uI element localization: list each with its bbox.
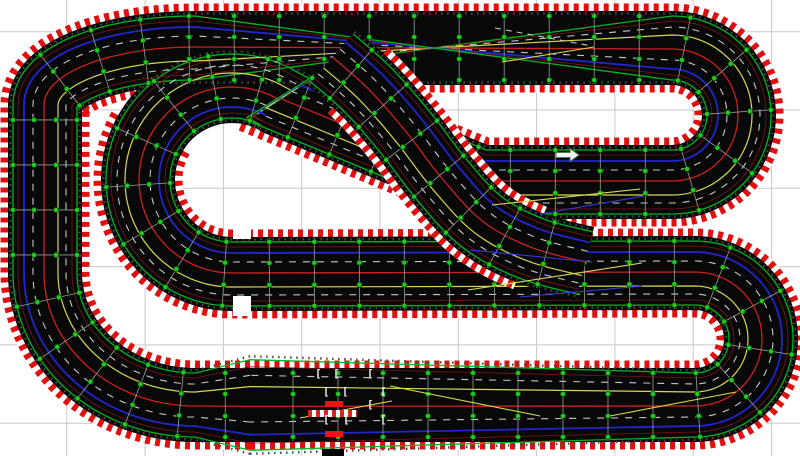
track-joint-dot[interactable] [179,391,184,396]
track-joint-dot[interactable] [56,295,61,300]
track-joint-dot[interactable] [412,13,417,18]
grid-position-bracket: [ [380,413,387,426]
track-joint-dot[interactable] [704,111,709,116]
track-joint-dot[interactable] [145,362,150,367]
track-joint-dot[interactable] [679,146,684,151]
track-joint-dot[interactable] [312,260,317,265]
track-joint-dot[interactable] [285,135,290,140]
track-joint-dot[interactable] [515,391,520,396]
track-joint-dot[interactable] [185,248,190,253]
track-joint-dot[interactable] [74,117,79,122]
track-joint-dot[interactable] [143,60,148,65]
track-joint-dot[interactable] [293,115,298,120]
track-joint-dot[interactable] [232,77,237,82]
track-joint-dot[interactable] [470,434,475,439]
track-joint-dot[interactable] [744,394,749,399]
track-joint-dot[interactable] [768,107,773,112]
track-joint-dot[interactable] [312,239,317,244]
track-joint-dot[interactable] [744,47,749,52]
track-joint-dot[interactable] [356,124,361,129]
track-joint-dot[interactable] [335,132,340,137]
track-joint-dot[interactable] [210,74,215,79]
track-joint-dot[interactable] [253,98,258,103]
track-joint-dot[interactable] [547,56,552,61]
track-joint-dot[interactable] [277,77,282,82]
track-joint-dot[interactable] [605,370,610,375]
track-joint-dot[interactable] [138,382,143,387]
track-joint-dot[interactable] [547,13,552,18]
track-joint-dot[interactable] [53,117,58,122]
track-joint-dot[interactable] [64,86,69,91]
track-joint-dot[interactable] [74,252,79,257]
track-joint-dot[interactable] [461,153,466,158]
track-joint-dot[interactable] [757,410,762,415]
track-joint-dot[interactable] [51,69,56,74]
track-joint-dot[interactable] [267,303,272,308]
track-joint-dot[interactable] [515,413,520,418]
track-joint-dot[interactable] [688,15,693,20]
track-joint-dot[interactable] [627,282,632,287]
grid-position-bracket: [ [342,385,349,398]
track-joint-dot[interactable] [101,362,106,367]
track-joint-dot[interactable] [517,206,522,211]
track-joint-dot[interactable] [312,303,317,308]
track-joint-dot[interactable] [372,110,377,115]
track-joint-dot[interactable] [220,303,225,308]
track-joint-dot[interactable] [147,182,152,187]
track-joint-dot[interactable] [134,134,139,139]
track-joint-dot[interactable] [290,413,295,418]
track-joint-dot[interactable] [277,13,282,18]
track-joint-dot[interactable] [163,284,168,289]
track-joint-dot[interactable] [218,116,223,121]
track-joint-dot[interactable] [37,356,42,361]
track-joint-dot[interactable] [502,13,507,18]
track-joint-dot[interactable] [277,34,282,39]
track-joint-dot[interactable] [402,239,407,244]
track-joint-dot[interactable] [553,190,558,195]
track-joint-dot[interactable] [487,262,492,267]
track-joint-dot[interactable] [223,434,228,439]
track-joint-dot[interactable] [412,194,417,199]
track-joint-dot[interactable] [181,370,186,375]
track-joint-dot[interactable] [470,370,475,375]
track-joint-dot[interactable] [10,117,15,122]
track-joint-dot[interactable] [643,211,648,216]
track-joint-dot[interactable] [684,36,689,41]
track-joint-dot[interactable] [10,207,15,212]
track-joint-dot[interactable] [357,303,362,308]
track-joint-dot[interactable] [77,103,82,108]
track-joint-dot[interactable] [88,28,93,33]
track-joint-dot[interactable] [778,288,783,293]
grid-position-bracket: [ [343,413,350,426]
track-joint-dot[interactable] [725,110,730,115]
track-joint-dot[interactable] [302,95,307,100]
track-joint-dot[interactable] [637,13,642,18]
track-joint-dot[interactable] [605,413,610,418]
track-joint-dot[interactable] [206,54,211,59]
track-joint-dot[interactable] [186,13,191,18]
track-joint-dot[interactable] [357,239,362,244]
track-joint-dot[interactable] [178,112,183,117]
track-joint-dot[interactable] [712,76,717,81]
track-joint-dot[interactable] [502,34,507,39]
track-joint-dot[interactable] [740,309,745,314]
track-joint-dot[interactable] [605,391,610,396]
track-joint-dot[interactable] [720,265,725,270]
track-joint-dot[interactable] [400,144,405,149]
track-joint-dot[interactable] [535,282,540,287]
track-joint-dot[interactable] [77,290,82,295]
track-joint-dot[interactable] [553,168,558,173]
track-joint-dot[interactable] [582,303,587,308]
track-joint-dot[interactable] [447,260,452,265]
track-joint-dot[interactable] [327,152,332,157]
track-joint-dot[interactable] [425,434,430,439]
track-joint-dot[interactable] [187,56,192,61]
track-joint-dot[interactable] [605,434,610,439]
track-joint-dot[interactable] [158,219,163,224]
grid-position-bracket: [ [315,367,322,380]
track-joint-dot[interactable] [747,109,752,114]
track-joint-dot[interactable] [643,147,648,152]
track-joint-dot[interactable] [672,302,677,307]
track-joint-dot[interactable] [598,147,603,152]
track-joint-dot[interactable] [541,261,546,266]
track-joint-dot[interactable] [267,260,272,265]
start-light-bar[interactable] [325,401,343,407]
track-joint-dot[interactable] [53,207,58,212]
track-joint-dot[interactable] [696,413,701,418]
track-joint-dot[interactable] [176,208,181,213]
track-joint-dot[interactable] [232,56,237,61]
track-joint-dot[interactable] [191,128,196,133]
track-joint-dot[interactable] [637,77,642,82]
track-joint-dot[interactable] [582,282,587,287]
track-joint-dot[interactable] [547,77,552,82]
track-joint-dot[interactable] [312,282,317,287]
track-joint-dot[interactable] [367,34,372,39]
track-joint-dot[interactable] [31,117,36,122]
track-joint-dot[interactable] [553,147,558,152]
track-joint-dot[interactable] [768,349,773,354]
track-joint-dot[interactable] [380,370,385,375]
track-joint-dot[interactable] [508,147,513,152]
track-joint-dot[interactable] [759,298,764,303]
track-joint-dot[interactable] [592,56,597,61]
track-joint-dot[interactable] [221,282,226,287]
track-joint-dot[interactable] [650,391,655,396]
track-joint-dot[interactable] [259,77,264,82]
track-joint-dot[interactable] [592,34,597,39]
track-joint-dot[interactable] [476,144,481,149]
track-joint-dot[interactable] [223,391,228,396]
track-joint-dot[interactable] [130,402,135,407]
track-joint-dot[interactable] [402,282,407,287]
track-joint-dot[interactable] [695,391,700,396]
track-joint-dot[interactable] [31,162,36,167]
track-joint-dot[interactable] [380,434,385,439]
track-joint-dot[interactable] [592,77,597,82]
track-joint-dot[interactable] [418,131,423,136]
track-joint-dot[interactable] [290,434,295,439]
track-joint-dot[interactable] [715,145,720,150]
track-joint-dot[interactable] [104,184,109,189]
track-joint-dot[interactable] [445,167,450,172]
track-joint-dot[interactable] [90,320,95,325]
track-joint-dot[interactable] [122,422,127,427]
track-joint-dot[interactable] [341,80,346,85]
track-joint-dot[interactable] [679,57,684,62]
track-joint-dot[interactable] [95,48,100,53]
track-joint-dot[interactable] [247,118,252,123]
track-joint-dot[interactable] [726,342,731,347]
track-joint-dot[interactable] [35,300,40,305]
track-joint-dot[interactable] [174,266,179,271]
track-joint-dot[interactable] [650,370,655,375]
track-joint-dot[interactable] [552,220,557,225]
track-joint-dot[interactable] [560,434,565,439]
track-joint-dot[interactable] [412,56,417,61]
track-joint-dot[interactable] [173,151,178,156]
track-joint-dot[interactable] [55,344,60,349]
track-joint-dot[interactable] [675,78,680,83]
track-joint-dot[interactable] [434,118,439,123]
track-joint-dot[interactable] [470,413,475,418]
track-joint-dot[interactable] [177,413,182,418]
track-joint-dot[interactable] [164,95,169,100]
track-joint-dot[interactable] [402,260,407,265]
track-joint-dot[interactable] [74,207,79,212]
track-joint-dot[interactable] [627,260,632,265]
track-joint-dot[interactable] [75,396,80,401]
track-joint-dot[interactable] [101,69,106,74]
track-joint-dot[interactable] [515,370,520,375]
track-joint-dot[interactable] [650,434,655,439]
track-joint-dot[interactable] [627,239,632,244]
track-joint-dot[interactable] [712,285,717,290]
track-joint-dot[interactable] [705,305,710,310]
track-joint-dot[interactable] [627,303,632,308]
start-light-bar[interactable] [325,431,343,437]
track-joint-dot[interactable] [691,187,696,192]
track-joint-dot[interactable] [322,13,327,18]
track-joint-dot[interactable] [322,56,327,61]
track-joint-dot[interactable] [140,38,145,43]
track-joint-dot[interactable] [560,413,565,418]
track-joint-dot[interactable] [186,34,191,39]
track-joint-dot[interactable] [196,230,201,235]
track-joint-dot[interactable] [223,370,228,375]
track-joint-dot[interactable] [367,13,372,18]
grid-position-bracket: [ [367,398,374,411]
track-joint-dot[interactable] [115,126,120,131]
track-joint-dot[interactable] [38,52,43,57]
track-joint-dot[interactable] [447,303,452,308]
track-joint-dot[interactable] [267,282,272,287]
track-joint-dot[interactable] [733,158,738,163]
track-joint-dot[interactable] [125,183,130,188]
track-editor-canvas[interactable]: [[[[[[[[[[ [0,0,800,456]
track-joint-dot[interactable] [151,79,156,84]
track-joint-dot[interactable] [322,34,327,39]
track-joint-dot[interactable] [355,63,360,68]
track-joint-dot[interactable] [457,13,462,18]
track-joint-dot[interactable] [474,200,479,205]
track-joint-dot[interactable] [560,391,565,396]
track-joint-dot[interactable] [457,56,462,61]
track-joint-dot[interactable] [232,34,237,39]
grid-position-bracket: [ [323,413,330,426]
track-joint-dot[interactable] [14,304,19,309]
track-joint-dot[interactable] [747,345,752,350]
start-control-box[interactable] [322,449,344,456]
track-joint-dot[interactable] [214,96,219,101]
track-joint-dot[interactable] [290,370,295,375]
track-joint-dot[interactable] [458,215,463,220]
track-joint-dot[interactable] [492,303,497,308]
track-joint-dot[interactable] [88,379,93,384]
track-joint-dot[interactable] [74,162,79,167]
track-joint-dot[interactable] [592,13,597,18]
track-joint-dot[interactable] [537,303,542,308]
track-joint-dot[interactable] [698,133,703,138]
track-joint-dot[interactable] [515,434,520,439]
track-joint-dot[interactable] [447,282,452,287]
track-joint-dot[interactable] [368,169,373,174]
track-joint-dot[interactable] [187,77,192,82]
track-joint-dot[interactable] [643,190,648,195]
track-joint-dot[interactable] [672,259,677,264]
track-joint-dot[interactable] [175,434,180,439]
track-joint-dot[interactable] [357,282,362,287]
track-joint-dot[interactable] [598,168,603,173]
track-joint-dot[interactable] [425,413,430,418]
track-joint-dot[interactable] [728,61,733,66]
track-joint-dot[interactable] [684,166,689,171]
track-joint-dot[interactable] [223,413,228,418]
track-joint-dot[interactable] [696,89,701,94]
track-joint-dot[interactable] [560,370,565,375]
track-joint-dot[interactable] [146,80,151,85]
track-joint-dot[interactable] [412,34,417,39]
track-joint-dot[interactable] [643,168,648,173]
track-joint-dot[interactable] [508,168,513,173]
track-joint-dot[interactable] [290,391,295,396]
track-joint-dot[interactable] [327,96,332,101]
track-joint-dot[interactable] [696,208,701,213]
track-joint-dot[interactable] [443,230,448,235]
track-joint-dot[interactable] [335,391,340,396]
track-joint-dot[interactable] [425,370,430,375]
track-joint-dot[interactable] [267,239,272,244]
track-joint-dot[interactable] [31,252,36,257]
track-joint-dot[interactable] [384,157,389,162]
track-joint-dot[interactable] [404,82,409,87]
track-joint-dot[interactable] [138,17,143,22]
track-joint-dot[interactable] [277,56,282,61]
track-joint-dot[interactable] [369,47,374,52]
track-joint-dot[interactable] [53,162,58,167]
track-joint-dot[interactable] [650,413,655,418]
track-joint-dot[interactable] [457,34,462,39]
track-joint-dot[interactable] [507,224,512,229]
track-joint-dot[interactable] [154,143,159,148]
track-joint-dot[interactable] [167,180,172,185]
track-joint-dot[interactable] [53,252,58,257]
track-joint-dot[interactable] [672,238,677,243]
track-joint-dot[interactable] [121,242,126,247]
track-joint-dot[interactable] [693,370,698,375]
track-joint-dot[interactable] [139,231,144,236]
track-joint-dot[interactable] [497,243,502,248]
track-joint-dot[interactable] [672,281,677,286]
track-joint-dot[interactable] [73,332,78,337]
track-joint-dot[interactable] [637,56,642,61]
track-joint-dot[interactable] [715,362,720,367]
track-joint-dot[interactable] [265,57,270,62]
track-joint-dot[interactable] [722,319,727,324]
track-joint-dot[interactable] [789,352,794,357]
track-joint-dot[interactable] [457,77,462,82]
track-joint-dot[interactable] [114,345,119,350]
grid-position-bracket: [ [323,385,330,398]
track-joint-dot[interactable] [357,260,362,265]
track-joint-dot[interactable] [697,434,702,439]
track-joint-dot[interactable] [489,185,494,190]
track-joint-dot[interactable] [598,211,603,216]
track-joint-dot[interactable] [502,77,507,82]
track-joint-dot[interactable] [232,13,237,18]
track-plan-svg[interactable]: [[[[[[[[[[ [0,0,800,456]
grid-position-bracket: [ [380,385,387,398]
grid-position-bracket: [ [367,367,374,380]
track-joint-dot[interactable] [402,303,407,308]
track-joint-dot[interactable] [728,245,733,250]
track-joint-dot[interactable] [224,239,229,244]
track-joint-dot[interactable] [428,181,433,186]
track-joint-dot[interactable] [729,377,734,382]
track-joint-dot[interactable] [222,260,227,265]
track-joint-dot[interactable] [388,96,393,101]
track-joint-dot[interactable] [10,252,15,257]
track-joint-dot[interactable] [749,171,754,176]
track-joint-dot[interactable] [10,162,15,167]
track-joint-dot[interactable] [637,34,642,39]
track-joint-dot[interactable] [470,391,475,396]
grid-position-bracket: [ [333,367,340,380]
track-joint-dot[interactable] [107,89,112,94]
track-joint-dot[interactable] [31,207,36,212]
track-joint-dot[interactable] [547,240,552,245]
